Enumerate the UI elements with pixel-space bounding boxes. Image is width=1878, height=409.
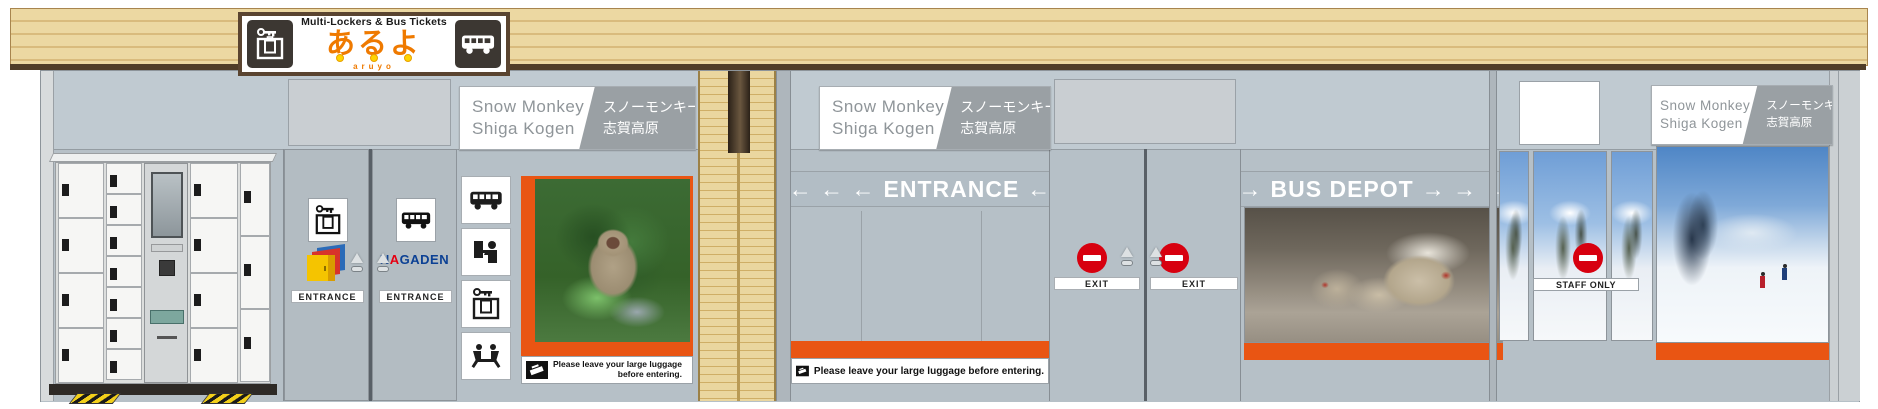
snow-monkey-sign: Snow MonkeyShiga Kogen スノーモンキー志賀高原: [459, 86, 696, 150]
luggage-drop-icon: [526, 361, 548, 379]
glass-mullion: [861, 211, 862, 341]
door-handle: [350, 253, 364, 283]
colorful-locker-cube-icon: [305, 246, 349, 284]
locker-payment-kiosk: [144, 163, 188, 383]
wood-column-slot: [728, 71, 750, 153]
monkey-photo-frame: [521, 176, 693, 356]
wood-column: [698, 71, 776, 401]
entrance-transom-panel: [288, 79, 451, 146]
luggage-drop-icon: [796, 362, 809, 380]
locker-door: [106, 225, 142, 256]
hot-spring-monkeys-photo: [1244, 207, 1503, 343]
kiosk-panel: [150, 310, 184, 324]
locker-door: [190, 273, 238, 328]
snow-monkey-sign: Snow MonkeyShiga Kogen スノーモンキー志賀高原: [819, 86, 1051, 150]
entrance-arrows: ← ← ←: [789, 176, 876, 203]
snow-monkey-sign-en: Snow MonkeyShiga Kogen: [1652, 86, 1750, 144]
kiosk-controls: [151, 244, 183, 252]
skier-figure: [1782, 268, 1787, 280]
locker-door: [58, 273, 104, 328]
bus-icon: [455, 20, 501, 68]
hazard-marker: [201, 393, 254, 404]
right-wall-edge: [1829, 71, 1860, 401]
no-entry-icon: [1159, 243, 1189, 273]
kiosk-slot: [157, 336, 177, 339]
luggage-notice-text: Please leave your large luggage before e…: [553, 360, 682, 380]
entrance-wayfinding-sign: ← ← ←ENTRANCE←: [791, 171, 1049, 207]
left-wall-edge: [41, 71, 54, 401]
exit-doors: EXIT EXIT: [1049, 149, 1241, 401]
snow-monkey-sign-jp: スノーモンキー志賀高原: [587, 87, 695, 149]
luggage-notice: Please leave your large luggage before e…: [791, 358, 1049, 384]
forest-monkey-photo: [535, 179, 690, 342]
glass-mullion: [981, 211, 982, 341]
locker-door: [190, 163, 238, 218]
locker-door: [106, 163, 142, 194]
orange-stripe: [1656, 343, 1829, 360]
aruyo-sign-text: Multi-Lockers & Bus Tickets あるよ aruyo: [299, 17, 449, 71]
snow-monkey-sign-en: Snow MonkeyShiga Kogen: [820, 87, 944, 149]
bus-entrance-label: ENTRANCE: [379, 290, 452, 303]
bus-icon: [396, 198, 436, 242]
winter-photo-strip: [1611, 151, 1653, 341]
building-facade: ENTRANCE NAGADEN ENTRANCE: [40, 70, 1860, 402]
entrance-arrow: ←: [1027, 176, 1051, 203]
kiosk-screen: [151, 172, 183, 238]
ticket-counter-icon: [461, 228, 511, 276]
locker-door: [106, 349, 142, 380]
waiting-area-icon: [461, 332, 511, 380]
blank-sign-panel: [1519, 81, 1600, 145]
title-accent-dots: [299, 54, 449, 62]
locker-door: [106, 256, 142, 287]
locker-door: [190, 328, 238, 383]
entrance-text: ENTRANCE: [884, 176, 1020, 203]
station-elevation-diagram: Multi-Lockers & Bus Tickets あるよ aruyo: [0, 0, 1878, 409]
exit-label: EXIT: [1054, 277, 1140, 290]
key-suitcase-locker-icon: [308, 198, 348, 242]
door-handle: [376, 253, 390, 283]
snow-monkey-sign-jp: スノーモンキー志賀高原: [1750, 86, 1833, 144]
locker-door: [58, 218, 104, 273]
locker-door: [240, 309, 270, 382]
depot-arrow: →: [1239, 176, 1263, 203]
kiosk-button: [159, 260, 175, 276]
door-divider: [1144, 149, 1147, 401]
skier-figure: [1760, 276, 1765, 288]
locker-door: [106, 194, 142, 225]
no-entry-icon: [1077, 243, 1107, 273]
hazard-marker: [69, 393, 122, 404]
locker-door: [58, 163, 104, 218]
orange-stripe: [1244, 343, 1503, 360]
locker-door: [106, 287, 142, 318]
no-entry-icon: [1573, 243, 1603, 273]
locker-door: [240, 236, 270, 309]
bus-icon: [461, 176, 511, 224]
staff-only-label: STAFF ONLY: [1533, 278, 1639, 291]
locker-door: [240, 163, 270, 236]
exit-label: EXIT: [1150, 277, 1238, 290]
locker-door: [58, 328, 104, 383]
exit-transom-panel: [1054, 79, 1236, 144]
door-handle: [1149, 247, 1163, 277]
locker-bank: [55, 153, 271, 399]
mid-pillar: [1489, 71, 1497, 401]
snow-monkey-sign-jp: スノーモンキー志賀高原: [944, 87, 1050, 149]
aruyo-sign: Multi-Lockers & Bus Tickets あるよ aruyo: [238, 12, 510, 76]
snow-monkey-sign: Snow MonkeyShiga Kogen スノーモンキー志賀高原: [1651, 85, 1833, 145]
bus-depot-wayfinding-sign: →BUS DEPOT→ → →: [1241, 171, 1506, 207]
winter-photo-strip: [1499, 151, 1529, 341]
door-handle: [1120, 247, 1134, 277]
locker-door: [190, 218, 238, 273]
locker-bank-body: [55, 162, 271, 384]
header-romaji: aruyo: [299, 63, 449, 71]
locker-bank-top: [49, 153, 277, 162]
depot-text: BUS DEPOT: [1271, 176, 1414, 203]
mid-pillar: [776, 71, 791, 401]
snow-monkey-sign-en: Snow MonkeyShiga Kogen: [460, 87, 587, 149]
luggage-notice: Please leave your large luggage before e…: [521, 356, 693, 384]
orange-stripe: [791, 341, 1049, 358]
key-suitcase-locker-icon: [247, 20, 293, 68]
header-subtitle: Multi-Lockers & Bus Tickets: [299, 17, 449, 28]
entrance-doors: ENTRANCE NAGADEN ENTRANCE: [283, 149, 456, 401]
locker-door: [106, 318, 142, 349]
locker-entrance-label: ENTRANCE: [291, 290, 364, 303]
key-suitcase-locker-icon: [461, 280, 511, 328]
ski-slope-photo: [1656, 146, 1829, 343]
luggage-notice-text: Please leave your large luggage before e…: [814, 366, 1044, 377]
